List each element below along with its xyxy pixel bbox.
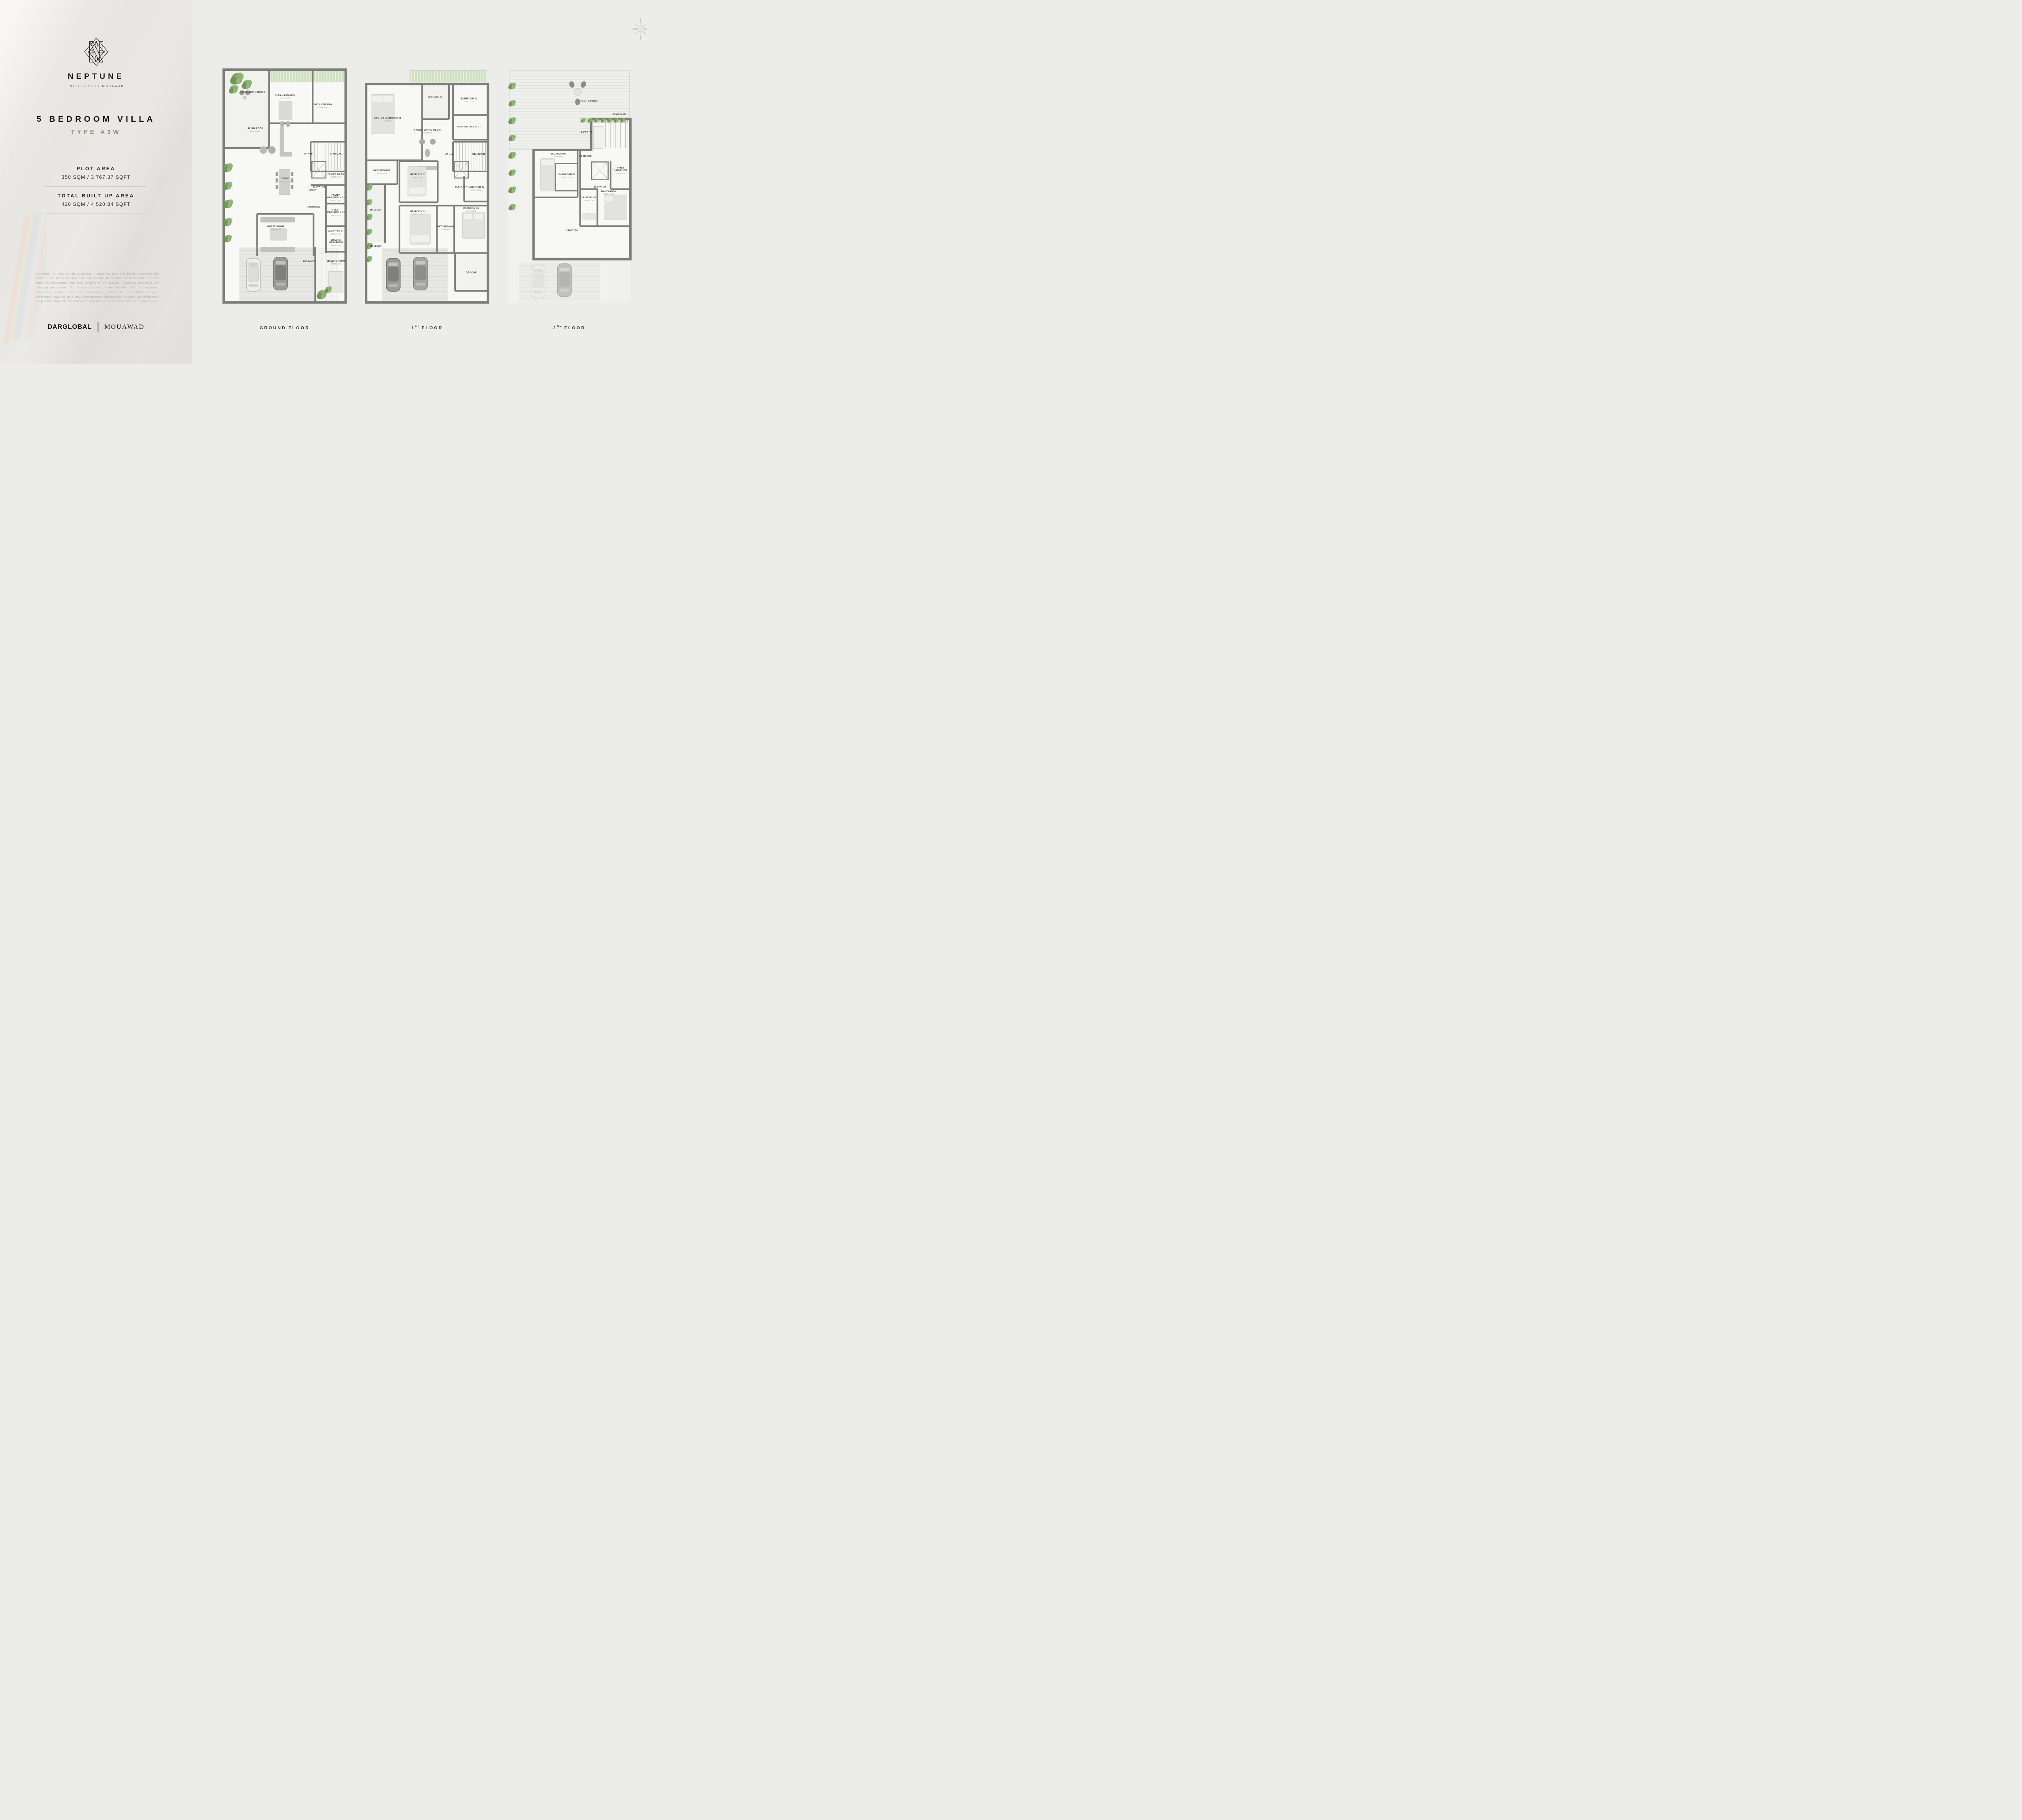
label-elevator: ELEVATOR: [594, 186, 606, 188]
room-label-bathroom04: BATHROOM 04: [467, 186, 484, 189]
car-ghost: [531, 265, 545, 298]
room-label-bedroom05: BEDROOM 05: [551, 153, 566, 155]
room-label-roof-garden: ROOF GARDEN: [580, 100, 599, 103]
second-floor-plan: ROOF GARDEN DOWN STAIRCASE CORRIDOR BEDR…: [503, 66, 636, 306]
footer-logos: DARGLOBAL | MOUAWAD: [0, 322, 192, 332]
room-label-bathroom03: BATHROOM 03: [437, 225, 454, 228]
label-lobby: LOBBY: [309, 189, 317, 192]
room-dims: 3200X1600: [464, 101, 474, 103]
room-dims: 4850X3800: [383, 120, 393, 122]
caption-text: 1: [411, 326, 415, 330]
caption-ground-floor: GROUNDFLOOR: [218, 325, 351, 330]
room-dims: 2050X1800: [562, 176, 572, 178]
room-dims: 3600X3300: [423, 132, 433, 134]
car-ghost: [557, 264, 571, 296]
divider: [45, 186, 147, 187]
caption-text: 2: [553, 326, 557, 330]
room-label-family-wc: FAMILY WC 01: [328, 173, 344, 176]
room-dims: 1550X2300: [331, 244, 341, 246]
room-dims: 1850X1200: [584, 199, 594, 201]
room-dims: 2850X4300: [553, 156, 563, 158]
caption-first-floor: 1STFLOOR: [360, 325, 494, 330]
room-label-bedroom04: BEDROOM 04: [463, 207, 479, 210]
caption-text: FLOOR: [422, 326, 443, 330]
room-label-dressing: DRESSING ROOM 01: [457, 126, 481, 128]
brand-name: NEPTUNE: [0, 72, 192, 81]
room-dims: 3400X4900: [466, 210, 476, 212]
label-entrance: ENTRANCE: [307, 206, 320, 208]
first-floor-plan: MASTER BEDROOM 01 4850X3800 TERRACE 01 B…: [360, 66, 494, 306]
label-corridor: CORRIDOR: [579, 155, 592, 158]
room-label-family-living: FAMILY LIVING ROOM: [414, 129, 441, 131]
car: [413, 257, 427, 290]
room-label-guest-wc: GUEST WC 01: [328, 231, 344, 233]
label-elevator: ELEVATOR: [455, 186, 467, 188]
label-up: UP: [445, 153, 448, 156]
room-dims: 3450X2150: [280, 97, 290, 99]
room-label-utilities: UTILITIES: [566, 230, 578, 232]
car: [246, 258, 260, 291]
label-balcony-lower: BALCONY: [370, 245, 382, 248]
room-dims: 1850X1900: [331, 199, 341, 201]
ground-floor-plan: BACKYARD GARDEN CLEAN KITCHEN 3450X2150 …: [218, 66, 351, 306]
room-label-drivers-room: DRIVERS ROOM: [327, 260, 345, 262]
room-dims: 3700X3800: [317, 106, 328, 108]
caption-superscript: ST: [415, 325, 420, 328]
room-dims: 2400X1640: [377, 172, 387, 174]
unit-type: TYPE A3W: [0, 129, 192, 135]
room-label-bedroom02: BEDROOM 02: [410, 174, 426, 176]
caption-second-floor: 2NDFLOOR: [503, 325, 636, 330]
room-dims: 5950X4450: [271, 228, 281, 230]
mouawad-logo: MOUAWAD: [104, 324, 144, 331]
room-dims: 3850X4450: [413, 214, 423, 216]
plot-area-value: 350 SQM / 3,767.37 SQFT: [0, 174, 192, 180]
built-up-area-value: 420 SQM / 4,520.84 SQFT: [0, 201, 192, 207]
room-label-guest-room: GUEST ROOM: [267, 225, 284, 228]
disclaimer-text: Disclaimer: All pictures, plans, layouts…: [36, 271, 159, 304]
label-gf-roof: GF-ROOF: [466, 271, 477, 274]
room-label-clean-kitchen: CLEAN KITCHEN: [275, 94, 295, 97]
room-label-bathroom02: BATHROOM 02: [373, 169, 390, 172]
room-dims: 2750X2600: [604, 193, 614, 195]
room-dims: 1500X3300: [471, 189, 481, 191]
room-dims: 1550X1650: [331, 176, 341, 178]
room-dims: 1550X1400: [615, 172, 626, 174]
room-label-drivers-wash: DRIVERSWASHROOM: [329, 239, 343, 244]
room-label-bedroom03: BEDROOM 03: [410, 211, 426, 213]
room-label-dining: DINING: [281, 178, 290, 180]
built-up-area-label: TOTAL BUILT UP AREA: [0, 193, 192, 199]
room-label-maids-room: MAIDS ROOM: [601, 190, 617, 193]
brand-block: NEPTUNE INTERIORS BY MOUAWAD: [0, 37, 192, 88]
car: [274, 257, 288, 290]
room-label-terrace: TERRACE 01: [428, 96, 442, 99]
room-label-dirty-kitchen: DIRTY KITCHEN: [313, 104, 332, 106]
brand-tagline: INTERIORS BY MOUAWAD: [0, 85, 192, 88]
label-up: UP: [304, 153, 307, 155]
room-dims: 2250X2800: [331, 263, 341, 265]
neptune-monogram-icon: [84, 37, 109, 66]
room-dims: 1550X1750: [331, 233, 341, 235]
caption-text: FLOOR: [288, 326, 310, 330]
room-label-bathroom01: BATHROOM 01: [461, 98, 477, 100]
room-label-master: MASTER BEDROOM 01: [374, 117, 401, 119]
darglobal-logo: DARGLOBAL: [47, 324, 91, 331]
label-staircase: STAIRCASE: [330, 153, 343, 155]
brochure-page: NEPTUNE INTERIORS BY MOUAWAD 5 BEDROOM V…: [0, 0, 647, 364]
room-label-living: LIVING ROOM: [247, 127, 264, 130]
room-dims: 3950X3850: [413, 176, 423, 178]
room-dims: 7500X5250: [250, 130, 260, 132]
divider: [45, 214, 147, 214]
room-label-backyard: BACKYARD GARDEN: [240, 91, 265, 93]
caption-text: FLOOR: [564, 326, 586, 330]
room-dims: 5080 X 3870: [279, 180, 291, 182]
logo-separator: |: [97, 320, 99, 333]
label-staircase: STAIRCASE: [472, 153, 486, 156]
unit-title-block: 5 BEDROOM VILLA TYPE A3W: [0, 114, 192, 135]
caption-text: GROUND: [260, 326, 286, 330]
areas-block: PLOT AREA 350 SQM / 3,767.37 SQFT TOTAL …: [0, 166, 192, 220]
label-staircase: STAIRCASE: [613, 113, 626, 116]
plot-area-label: PLOT AREA: [0, 166, 192, 171]
caption-superscript: ND: [557, 325, 562, 328]
car: [386, 258, 400, 291]
room-label-bathroom05: BATHROOM 05: [558, 174, 575, 176]
room-dims: 1950X2950: [331, 214, 341, 216]
label-elevator: ELEVATOR: [313, 186, 325, 188]
compass-rose-icon: [629, 18, 647, 40]
room-label-laundry: LAUNDRY 01: [582, 197, 596, 199]
label-entrance-driveway: ENTRANCE: [303, 260, 316, 263]
label-down: DOWN: [581, 131, 588, 133]
unit-title: 5 BEDROOM VILLA: [0, 114, 192, 124]
room-dims: 1600X2850: [440, 228, 451, 230]
left-panel: NEPTUNE INTERIORS BY MOUAWAD 5 BEDROOM V…: [0, 0, 192, 364]
label-balcony-upper: BALCONY: [370, 209, 382, 212]
